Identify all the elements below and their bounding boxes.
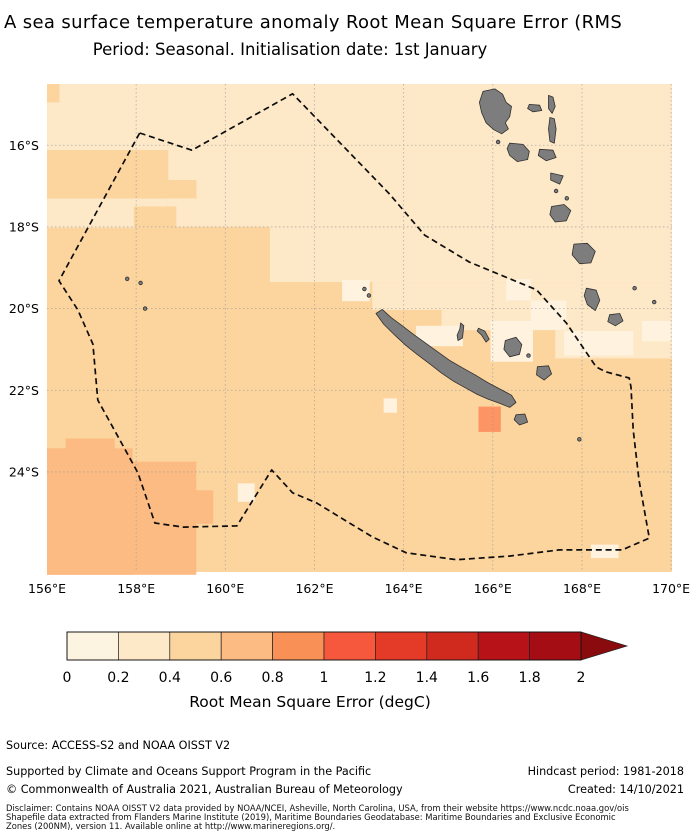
figure-title: A sea surface temperature anomaly Root M… (4, 12, 622, 33)
x-tick-label: 162°E (295, 581, 333, 596)
colorbar-tick-label: 0.4 (159, 670, 181, 686)
x-tick-label: 156°E (28, 581, 66, 596)
rmse-cell (642, 321, 671, 341)
disclaimer-line-3: Zones (200NM), version 11. Available onl… (6, 821, 335, 831)
colorbar-tick-label: 1.6 (467, 670, 489, 686)
colorbar-tick-label: 0.2 (107, 670, 129, 686)
colorbar-canvas: 00.20.40.60.811.21.41.61.82Root Mean Squ… (0, 624, 690, 719)
colorbar-tick-label: 2 (577, 670, 586, 686)
colorbar-tick-label: 0 (63, 670, 72, 686)
rmse-cell (47, 448, 133, 575)
created-date-text: Created: 14/10/2021 (568, 783, 684, 796)
colorbar-segment (478, 632, 529, 660)
supported-by-text: Supported by Climate and Oceans Support … (6, 765, 371, 778)
x-tick-label: 168°E (563, 581, 601, 596)
y-tick-label: 24°S (9, 464, 39, 479)
rmse-cell (479, 407, 501, 432)
colorbar-segment (67, 632, 118, 660)
rmse-cell (47, 84, 672, 150)
rmse-cell (531, 300, 567, 329)
colorbar-tick-label: 0.8 (261, 670, 283, 686)
islet-dot (139, 281, 143, 285)
colorbar-tick-label: 1.8 (518, 670, 540, 686)
y-tick-label: 18°S (9, 219, 39, 234)
islet-dot (633, 286, 637, 290)
colorbar-tick-label: 1.2 (364, 670, 386, 686)
rmse-cell (270, 227, 672, 282)
hindcast-period-text: Hindcast period: 1981-2018 (528, 765, 684, 778)
colorbar-tick-label: 0.6 (210, 670, 232, 686)
colorbar-segment (273, 632, 324, 660)
x-tick-label: 170°E (652, 581, 690, 596)
rmse-cell (195, 490, 213, 524)
colorbar-segment (118, 632, 169, 660)
colorbar-segment (427, 632, 478, 660)
rmse-cell (238, 483, 255, 501)
colorbar-segment (324, 632, 375, 660)
rmse-cell (47, 150, 168, 198)
colorbar-tick-label: 1.4 (416, 670, 438, 686)
islet-dot (578, 438, 582, 442)
rmse-cell (591, 545, 619, 559)
rmse-cell (66, 439, 115, 451)
rmse-cell (506, 279, 531, 300)
y-tick-label: 20°S (9, 301, 39, 316)
island-pentecost (549, 118, 557, 144)
y-tick-label: 16°S (9, 138, 39, 153)
islet-dot (143, 307, 147, 311)
rmse-map-canvas: 156°E158°E160°E162°E164°E166°E168°E170°E… (47, 84, 672, 572)
islet-dot (565, 197, 569, 201)
copyright-text: © Commonwealth of Australia 2021, Austra… (6, 783, 403, 796)
x-tick-label: 164°E (385, 581, 423, 596)
islet-dot (527, 354, 531, 358)
source-text: Source: ACCESS-S2 and NOAA OISST V2 (6, 739, 230, 752)
x-tick-label: 166°E (474, 581, 512, 596)
colorbar-segment (221, 632, 272, 660)
rmse-cell (167, 180, 196, 198)
colorbar-area: 00.20.40.60.811.21.41.61.82Root Mean Squ… (0, 624, 690, 719)
rmse-cell (564, 331, 633, 356)
map-area: 156°E158°E160°E162°E164°E166°E168°E170°E… (47, 84, 672, 572)
rmse-cell (384, 398, 397, 412)
figure-subtitle: Period: Seasonal. Initialisation date: 1… (0, 40, 580, 59)
rmse-cell (167, 150, 672, 227)
y-tick-label: 22°S (9, 383, 39, 398)
colorbar-segment (375, 632, 426, 660)
x-tick-label: 158°E (117, 581, 155, 596)
figure-page: { "title": { "line1": "A sea surface tem… (0, 0, 690, 839)
colorbar-segment (530, 632, 581, 660)
rmse-cell (134, 207, 176, 228)
colorbar-segment (170, 632, 221, 660)
colorbar-tick-label: 1 (320, 670, 329, 686)
islet-dot (496, 140, 500, 144)
rmse-cell (47, 84, 60, 102)
islet-dot (554, 189, 558, 193)
x-tick-label: 160°E (206, 581, 244, 596)
islet-dot (367, 294, 371, 298)
islet-dot (125, 277, 129, 281)
colorbar-axis-label: Root Mean Square Error (degC) (189, 693, 431, 711)
rmse-cell (132, 462, 197, 575)
colorbar-extend-arrow (581, 632, 627, 660)
islet-dot (363, 287, 367, 291)
islet-dot (652, 300, 656, 304)
